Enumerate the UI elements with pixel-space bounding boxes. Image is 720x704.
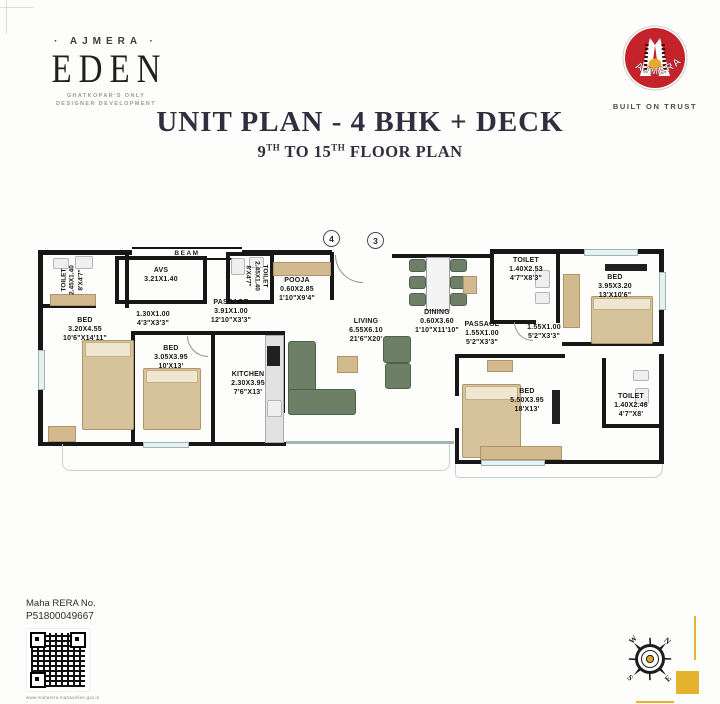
- dining-table-furniture: [426, 257, 450, 311]
- room-label-passage: PASSAGE 1.55X1.00 5'2"X3'3": [464, 320, 499, 348]
- room-label-bed: BED 5.50X3.95 18'X13': [510, 387, 544, 415]
- room-label-passage-dims: 1.55X1.00 5'2"X3'3": [527, 323, 561, 341]
- unit-marker: 3: [367, 232, 384, 249]
- room-label-toilet: TOILET 2.45X1.40 8'X4'7": [60, 265, 85, 295]
- room-label-kitchen: KITCHEN 2.30X3.95 7'6"X13': [231, 370, 265, 398]
- pillow-furniture: [85, 342, 131, 357]
- armchair-furniture: [385, 363, 411, 389]
- brand-block: · AJMERA · EDEN GHATKOPAR'S ONLY DESIGNE…: [16, 36, 196, 107]
- page-subtitle: 9TH TO 15TH FLOOR PLAN: [0, 142, 720, 162]
- gold-corner-square: [676, 671, 699, 694]
- unit-plan-poster: · AJMERA · EDEN GHATKOPAR'S ONLY DESIGNE…: [0, 0, 720, 704]
- wall: [556, 249, 560, 323]
- dining-chair: [450, 293, 467, 306]
- rera-block: Maha RERA No. P51800049667 www.maharera.…: [26, 598, 156, 700]
- dining-chair: [409, 293, 426, 306]
- wall: [602, 358, 606, 428]
- room-label-bed: BED 3.20X4.55 10'6"X14'11": [63, 316, 107, 344]
- kitchen-sink: [267, 400, 282, 417]
- tv-unit: [552, 390, 560, 424]
- armchair-furniture: [383, 336, 411, 363]
- wardrobe-furniture: [563, 274, 580, 328]
- room-label-toilet: TOILET 2.45X1.40 8'X4'7": [243, 261, 268, 291]
- subtitle-part: FLOOR PLAN: [345, 142, 462, 161]
- tv-unit: [605, 264, 647, 271]
- wall: [602, 424, 660, 428]
- unit-marker: 4: [323, 230, 340, 247]
- sofa-furniture: [288, 389, 356, 415]
- room-label-living: LIVING 6.55X6.10 21'6"X20': [349, 317, 383, 345]
- gold-corner-line: [636, 701, 674, 703]
- page-title: UNIT PLAN - 4 BHK + DECK: [0, 106, 720, 139]
- toilet-fixture: [633, 370, 649, 381]
- room-label-toilet: TOILET 1.40X2.53 4'7"X8'3": [509, 256, 543, 284]
- pooja-shelf: [273, 262, 331, 276]
- rera-number: P51800049667: [26, 611, 156, 622]
- wardrobe-furniture: [463, 276, 477, 294]
- dining-chair: [450, 259, 467, 272]
- room-label-bed: BED 3.95X3.20 13'X10'6": [598, 273, 632, 301]
- subtitle-part: TO 15: [280, 142, 331, 161]
- room-label-pooja: POOJA 0.60X2.85 1'10"X9'4": [279, 276, 315, 304]
- wall: [211, 335, 215, 444]
- room-label-passage-dims: 1.30X1.00 4'3"X3'3": [136, 310, 170, 328]
- subtitle-part: 9: [257, 142, 266, 161]
- wall: [455, 354, 565, 358]
- toilet-fixture: [535, 292, 550, 304]
- wall: [330, 252, 334, 300]
- wall: [135, 331, 285, 335]
- ajmera-logo-icon: AJMERA: [618, 24, 692, 96]
- stove-icon: [267, 346, 280, 366]
- wall: [38, 250, 43, 446]
- room-label-bed: BED 3.05X3.95 10'X13': [154, 344, 188, 372]
- subtitle-sup: TH: [331, 143, 345, 153]
- ajmera-logo-block: AJMERA BUILT ON TRUST: [608, 24, 702, 111]
- qr-finder: [30, 632, 46, 648]
- room-label-dining: DINING 0.60X3.60 1'10"X11'10": [415, 308, 459, 336]
- subtitle-sup: TH: [266, 143, 280, 153]
- wardrobe-furniture: [50, 294, 96, 306]
- wardrobe-furniture: [480, 446, 562, 460]
- wall: [490, 249, 494, 321]
- deck-outline: [455, 464, 663, 478]
- wall: [455, 428, 459, 464]
- room-label-passage: PASSAGE 3.91X1.00 12'10"X3'3": [211, 298, 251, 326]
- compass-block: N W S E: [620, 628, 680, 688]
- compass-rose-icon: N W S E: [620, 628, 680, 688]
- compass-s: S: [625, 673, 635, 683]
- room-label-toilet: TOILET 1.40X2.46 4'7"X8': [614, 392, 648, 420]
- door-arc: [187, 336, 208, 357]
- brand-name: · AJMERA ·: [16, 36, 196, 47]
- gold-corner-line: [694, 616, 696, 660]
- rera-label: Maha RERA No.: [26, 598, 156, 609]
- wall: [38, 250, 132, 255]
- compass-e: E: [663, 674, 673, 684]
- room-label-avs: AVS 3.21X1.40: [144, 266, 178, 284]
- compass-w: W: [627, 634, 639, 646]
- qr-finder: [30, 672, 46, 688]
- window: [659, 272, 666, 310]
- page-edge-line: [6, 0, 7, 34]
- rera-url: www.maharera.mahaonline.gov.in: [26, 695, 156, 700]
- wardrobe-furniture: [48, 426, 76, 442]
- qr-code: [26, 628, 90, 692]
- wall: [455, 354, 459, 396]
- wall: [659, 354, 664, 464]
- wardrobe-furniture: [487, 360, 513, 372]
- floor-plan: BEAM: [35, 232, 669, 482]
- qr-finder: [70, 632, 86, 648]
- brand-tagline-line1: GHATKOPAR'S ONLY: [16, 93, 196, 99]
- brand-project-name: EDEN: [16, 48, 196, 93]
- dining-chair: [409, 276, 426, 289]
- door-arc: [335, 255, 363, 283]
- window: [38, 350, 45, 390]
- dining-chair: [409, 259, 426, 272]
- deck-outline: [62, 444, 450, 471]
- window: [584, 249, 638, 256]
- coffee-table-furniture: [337, 356, 358, 373]
- pillow-furniture: [146, 370, 198, 383]
